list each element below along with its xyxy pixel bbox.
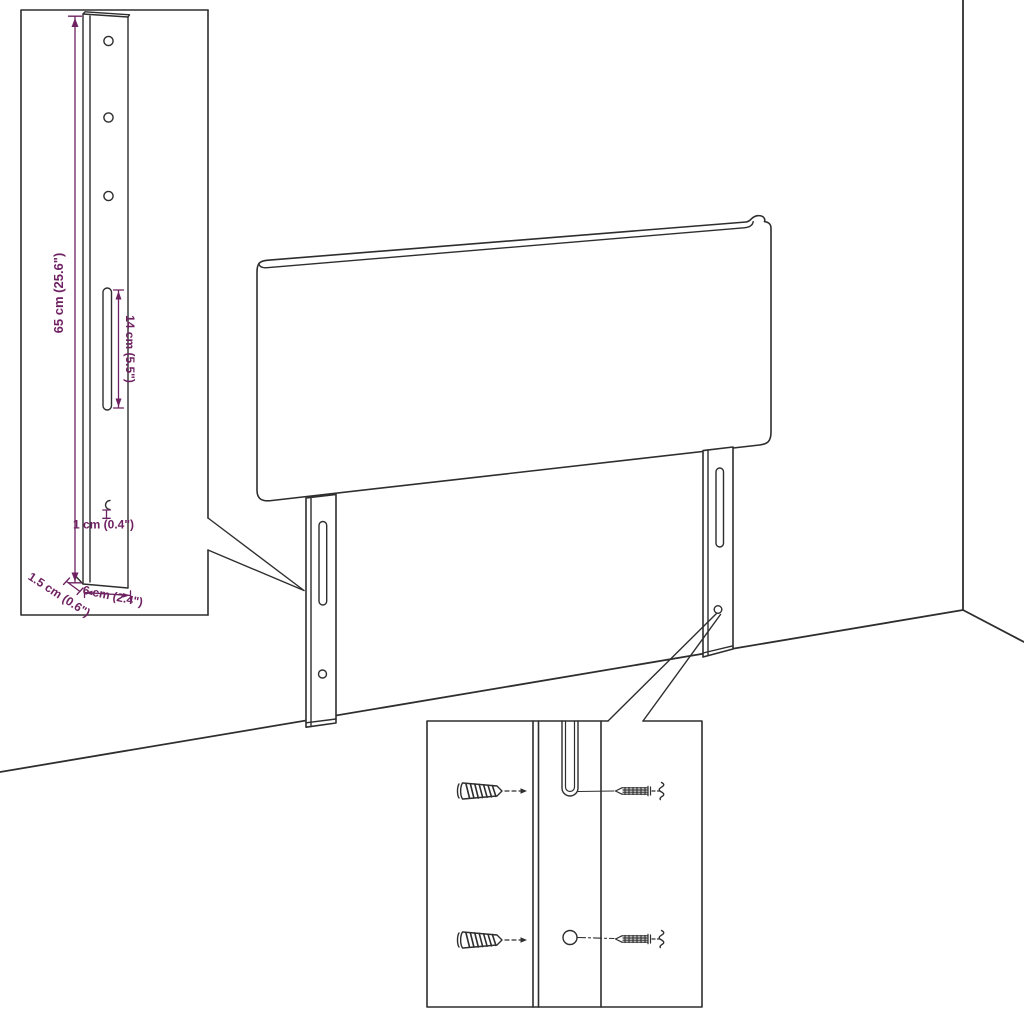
callout-wedge-line	[208, 518, 304, 591]
floor-line-right	[963, 610, 1024, 642]
right-leg	[703, 447, 733, 657]
diagram-page: 65 cm (25.6") 14 cm (5.5") 1 cm (0.4") 1…	[0, 0, 1024, 1024]
mounting-detail-box-fill	[427, 721, 702, 1007]
dim-label-lip: 1 cm (0.4")	[73, 518, 134, 532]
left-leg	[306, 494, 336, 727]
callout-wedge-line	[208, 550, 304, 591]
callout-wedge-line	[643, 615, 721, 722]
dim-label-leg-height: 65 cm (25.6")	[51, 253, 66, 334]
headboard-panel	[257, 216, 771, 501]
diagram-canvas: 65 cm (25.6") 14 cm (5.5") 1 cm (0.4") 1…	[0, 0, 1024, 1024]
dim-label-slot-length: 14 cm (5.5")	[123, 315, 137, 383]
leader-line	[578, 791, 614, 792]
